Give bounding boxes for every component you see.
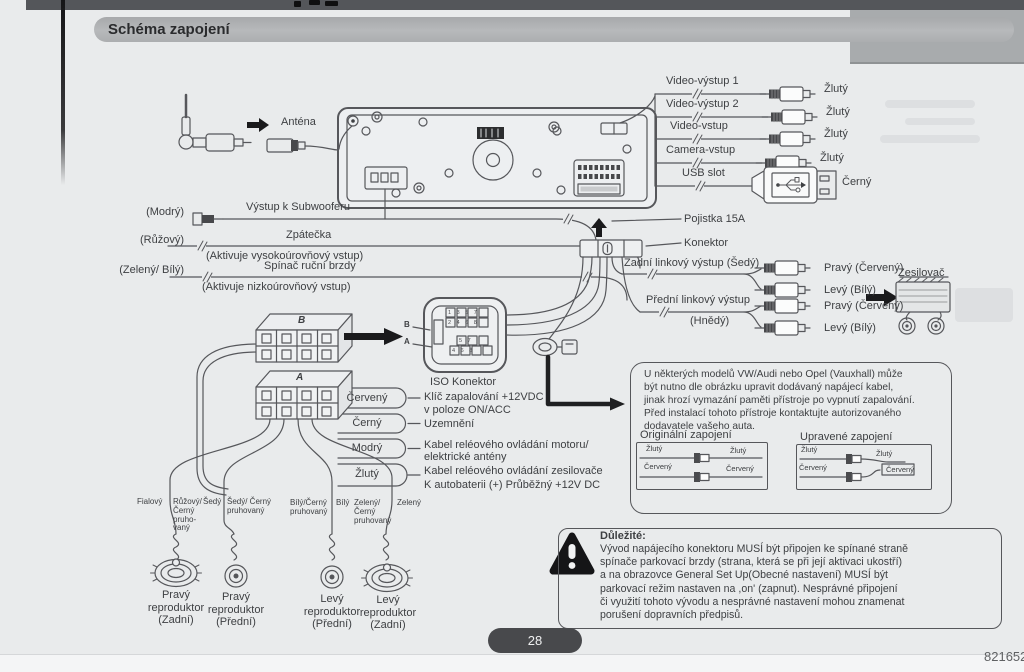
wire-color-label: (Zelený/ Bílý) <box>104 264 184 277</box>
reverse-label: Zpátečka <box>286 229 331 242</box>
desc-ground: Uzemnění <box>424 418 474 431</box>
power-wire-red: Červený <box>336 392 398 405</box>
rca-plug-icon <box>760 87 815 101</box>
rca-plug-icon <box>755 261 810 275</box>
rca-plug-icon <box>755 283 810 297</box>
iso-connector-label: ISO Konektor <box>430 376 496 389</box>
fuse-label: Pojistka 15A <box>684 213 745 226</box>
amplifier-label: Zesilovač <box>898 267 944 280</box>
page-number-badge: 28 <box>488 628 582 653</box>
rca-plug-icon <box>755 321 810 335</box>
mini-wire-label: Červený <box>726 465 754 473</box>
rca-plug-icon <box>755 299 810 313</box>
antenna-label: Anténa <box>281 116 316 129</box>
note-arrow <box>548 357 625 411</box>
iso-a-label: A <box>404 337 410 346</box>
modified-wiring-title: Upravené zapojení <box>800 431 892 444</box>
rca-plugs-video <box>756 87 817 170</box>
plug-color-label: Černý <box>842 176 871 189</box>
spk-wire-label: Zelený <box>397 499 421 508</box>
plug-color-label: Žlutý <box>820 152 844 165</box>
iso-pin-numbers: 1 3 5 7 <box>448 310 479 316</box>
video-out1-label: Video-výstup 1 <box>666 75 739 88</box>
power-wire-blue: Modrý <box>336 442 398 455</box>
plug-color-label: Žlutý <box>824 128 848 141</box>
front-right-speaker-icon <box>225 565 247 587</box>
speaker-name: Levý reproduktor (Zadní) <box>346 594 430 632</box>
mini-wire-label: Žlutý <box>876 450 892 458</box>
spk-wire-label: Zelený/ Černý pruhovaný <box>354 499 391 525</box>
spk-wire-label: Bílý <box>336 499 349 508</box>
wire-color-label: (Růžový) <box>120 234 184 247</box>
important-title: Důležité: <box>600 530 646 543</box>
speaker-name: Pravý reproduktor (Přední) <box>194 591 278 629</box>
spk-wire-label: Bílý/Černý pruhovaný <box>290 499 327 517</box>
spk-wire-label: Šedý <box>203 498 221 507</box>
original-wiring-title: Originální zapojení <box>640 429 732 442</box>
rca-label: Pravý (Červený) <box>824 262 903 275</box>
speakers-drawing <box>151 559 413 592</box>
desc-battery: K autobaterii (+) Průběžný +12V DC <box>424 479 600 492</box>
mini-wire-label: Žlutý <box>730 447 746 455</box>
mini-wire-label: Žlutý <box>646 445 662 453</box>
mini-wire-label: Červený <box>644 463 672 471</box>
iso-pin-numbers: 2 4 6 8 <box>448 320 479 326</box>
front-lineout-label: Přední linkový výstup <box>646 294 750 307</box>
spk-wire-label: Fialový <box>137 498 162 507</box>
mini-wire-label: Červený <box>799 464 827 472</box>
head-unit-drawing <box>338 96 656 219</box>
mini-wire-label: Žlutý <box>801 446 817 454</box>
rca-plug-icon <box>762 110 817 124</box>
plug-color-label: Žlutý <box>826 106 850 119</box>
iso-pin-numbers: 5 7 <box>459 338 473 344</box>
block-a-letter: A <box>296 372 303 384</box>
usb-slot-label: USB slot <box>682 167 725 180</box>
front-left-speaker-icon <box>321 566 343 588</box>
plug-color-label: Žlutý <box>824 83 848 96</box>
desc-motor-antenna: Kabel reléového ovládání motoru/ elektri… <box>424 440 589 463</box>
desc-amp-remote: Kabel reléového ovládání zesilovače <box>424 465 603 478</box>
video-in-label: Video-vstup <box>670 120 728 133</box>
iso-b-label: B <box>404 320 410 329</box>
handbrake-label: Spínač ruční brzdy <box>264 260 356 273</box>
important-text: Vývod napájecího konektoru MUSÍ být přip… <box>600 543 908 622</box>
loom-wires <box>506 257 640 339</box>
power-wire-black: Černý <box>336 417 398 430</box>
handbrake-sub-label: (Aktivuje nizkoúrovňový vstup) <box>202 281 351 294</box>
document-number: 821652 <box>984 649 1024 664</box>
rear-right-speaker-icon <box>151 559 202 587</box>
spk-wire-label: Růžový/ Černý pruho- vaný <box>173 498 202 533</box>
block-b-letter: B <box>298 315 305 327</box>
rca-label: Pravý (Červený) <box>824 300 903 313</box>
iso-pin-numbers: 4 6 8 <box>452 348 474 354</box>
mini-wire-label: Červený <box>886 466 914 474</box>
usb-plug-icon <box>752 167 836 203</box>
up-arrow-icon <box>591 218 607 237</box>
front-lineout-color: (Hnědý) <box>690 315 729 328</box>
desc-ignition: Klíč zapalování +12VDC v poloze ON/ACC <box>424 391 544 416</box>
rca-plug-icon <box>760 132 815 146</box>
vw-note-text: U některých modelů VW/Audi nebo Opel (Va… <box>644 369 915 434</box>
right-arrow-icon <box>344 328 403 345</box>
wire-color-label: (Modrý) <box>120 206 184 219</box>
subwoofer-out-label: Výstup k Subwooferu <box>246 201 350 214</box>
manual-page: Schéma zapojení <box>0 0 1024 672</box>
spk-wire-label: Šedý/ Černý pruhovaný <box>227 498 271 516</box>
connector-label: Konektor <box>684 237 728 250</box>
rear-lineout-label: Zadní linkový výstup (Šedý) <box>624 257 759 270</box>
rca-label: Levý (Bílý) <box>824 322 876 335</box>
power-wire-yellow: Žlutý <box>336 468 398 481</box>
video-out2-label: Video-výstup 2 <box>666 98 739 111</box>
camera-in-label: Camera-vstup <box>666 144 735 157</box>
inline-fuse-drawing <box>533 339 577 356</box>
rca-label: Levý (Bílý) <box>824 284 876 297</box>
rear-left-speaker-icon <box>362 564 413 592</box>
